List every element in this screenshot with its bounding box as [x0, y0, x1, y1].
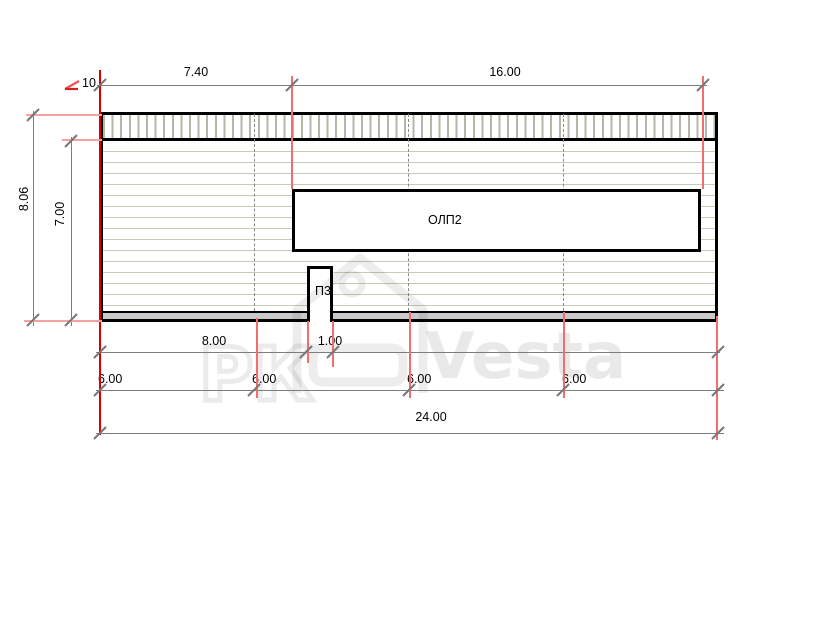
extension-line [332, 321, 334, 367]
dim-top-2: 16.00 [489, 65, 520, 79]
roof-hatch-band[interactable] [100, 112, 718, 141]
extension-line [702, 76, 704, 189]
dim-left-outer: 8.06 [17, 187, 31, 211]
dim-left-inner: 7.00 [53, 202, 67, 226]
extension-line [291, 76, 293, 189]
extension-line [24, 320, 102, 322]
dimension-line-top [97, 85, 707, 86]
extension-line [26, 114, 102, 116]
watermark-right-text: Vesta [425, 320, 626, 394]
dim-row1-1: 8.00 [202, 334, 226, 348]
door-p3[interactable]: П3 [307, 266, 333, 322]
dimension-line-row1 [96, 352, 720, 353]
extension-line [716, 316, 718, 440]
panel-olp2[interactable]: ОЛП2 [292, 189, 701, 252]
dim-top-1: 7.40 [184, 65, 208, 79]
extension-line [307, 321, 309, 363]
dim-row2-4: 6.00 [562, 372, 586, 386]
dimension-line-left-inner [71, 137, 72, 326]
grid-line [254, 114, 255, 311]
door-p3-label: П3 [315, 284, 331, 298]
dimension-line-total [96, 433, 724, 434]
panel-olp2-label: ОЛП2 [428, 213, 462, 227]
dimension-line-left-outer [33, 111, 34, 326]
dim-row2-1: 6.00 [98, 372, 122, 386]
drawing-canvas[interactable]: ОЛП2 П3 РК Vesta [0, 0, 820, 630]
dim-total: 24.00 [415, 410, 446, 424]
extension-line [99, 70, 101, 435]
slope-angle-icon [62, 78, 80, 92]
